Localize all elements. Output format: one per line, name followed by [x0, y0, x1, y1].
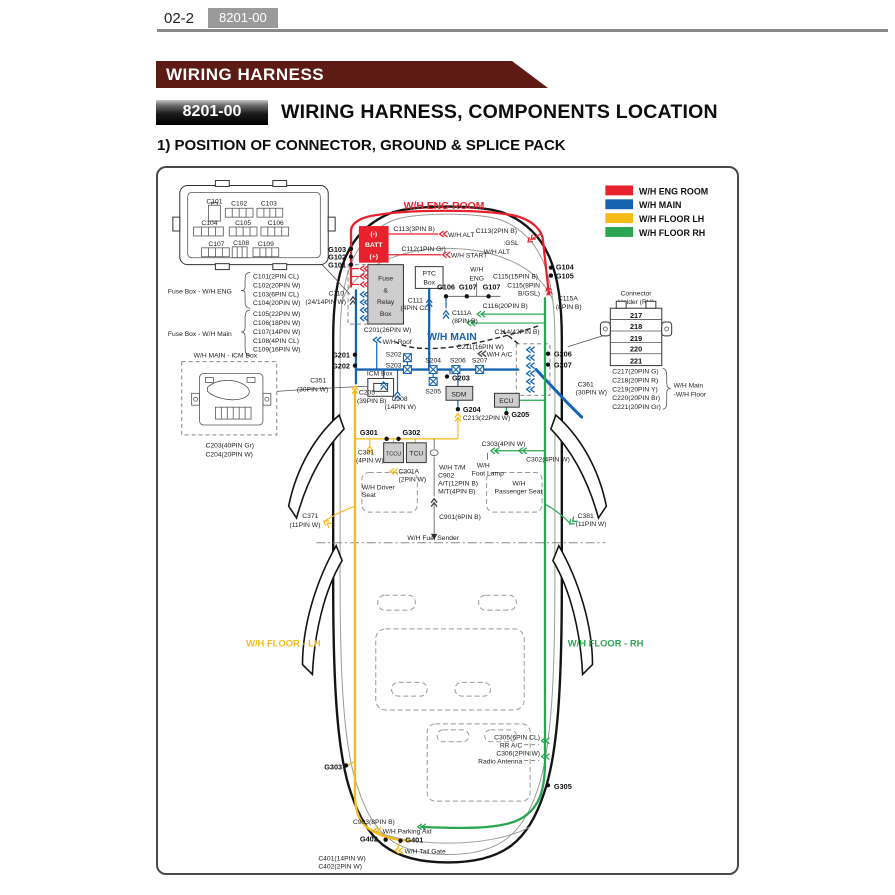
text-diagram-labels-s202: S202	[386, 352, 402, 359]
text-diagram-labels-g207: G207	[554, 361, 572, 370]
text-diagram-fusebox-conns-5: C106	[268, 220, 284, 227]
text-diagram-labels-c112: C112(1PIN Gr)	[401, 246, 445, 253]
text-diagram-labels-rrac: RR A/C	[500, 743, 523, 750]
chapter-banner: WIRING HARNESS	[156, 61, 548, 88]
ground-point-icon	[546, 362, 550, 366]
splice-pack-icon	[452, 366, 460, 374]
text-legend-items-1-label: W/H MAIN	[639, 200, 681, 210]
text-diagram-fusebox-conns-4: C105	[235, 220, 251, 227]
text-diagram-holder-items-3: C220(20PIN Br)	[612, 395, 660, 402]
connector-icon	[360, 315, 368, 321]
text-diagram-labels-c211: C211(16PIN W)	[457, 344, 504, 351]
text-diagram-labels-c305: C305(6PIN CL)	[494, 735, 540, 742]
connector-icon	[390, 469, 398, 475]
text-diagram-labels-g106: G106	[437, 282, 455, 291]
text-diagram-labels-c401: C401(14PIN W)	[318, 855, 365, 862]
section-heading: 8201-00 WIRING HARNESS, COMPONENTS LOCAT…	[156, 100, 718, 125]
text-diagram-labels-g402: G402	[360, 835, 378, 844]
text-diagram-labels-c115Ab: (8PIN B)	[556, 304, 582, 311]
ground-point-icon	[465, 294, 469, 298]
text-diagram-labels-c306: C306(2PIN W)	[496, 751, 540, 758]
text-diagram-icm-c204: C204(20PIN W)	[206, 452, 253, 459]
text-diagram-labels-c301Aa: C301A	[399, 468, 420, 475]
text-diagram-labels-g105: G105	[556, 272, 574, 281]
text-diagram-labels-c110b: (24/14PIN W)	[305, 299, 346, 306]
text-diagram-labels-c111b: (4PIN CL)	[400, 305, 430, 312]
text-diagram-labels-c361b: (30PIN W)	[576, 389, 607, 396]
text-diagram-labels-tailgate: W/H Tail Gate	[404, 849, 446, 856]
text-diagram-labels-c302: C302(4PIN W)	[526, 457, 570, 464]
text-diagram-labels-fr2: &	[383, 287, 388, 294]
text-diagram-labels-g206: G206	[554, 350, 572, 359]
connector-holder-callout: Connector Holder (RH) 217 218 219 220 22…	[600, 290, 706, 411]
text-diagram-labels-s207: S207	[472, 358, 488, 365]
text-diagram-labels-c381b: (11PIN W)	[576, 521, 607, 528]
text-diagram-labels-c351a: C351	[310, 377, 326, 384]
text-diagram-labels-whpass1: W/H	[512, 480, 525, 487]
text-diagram-labels-g202: G202	[332, 362, 350, 371]
section-badge: 8201-00	[156, 100, 268, 125]
text-legend-items-0-label: W/H ENG ROOM	[639, 186, 708, 196]
legend: W/H ENG ROOM W/H MAIN W/H FLOOR LH W/H F…	[605, 185, 708, 237]
text-diagram-labels-g301: G301	[360, 428, 378, 437]
text-diagram-labels-whroof: W/H Roof	[383, 339, 412, 346]
ground-point-icon	[546, 783, 550, 787]
text-diagram-labels-ecu: ECU	[499, 398, 513, 405]
text-legend-items-2-label: W/H FLOOR LH	[639, 214, 704, 224]
text-diagram-labels-c201: C201(26PIN W)	[364, 327, 411, 334]
text-diagram-labels-mt4: M/T(4PIN B)	[438, 488, 475, 495]
text-diagram-holder-rows-4: 221	[630, 357, 642, 366]
text-diagram-fusebox-conns-6: C107	[208, 241, 224, 248]
text-diagram-labels-c205a: C205	[359, 389, 375, 396]
text-diagram-labels-whac: W/H A/C	[487, 352, 513, 359]
splice-pack-icon	[429, 366, 437, 374]
connector-icon	[526, 234, 536, 244]
text-diagram-fusebox-conns-8: C109	[258, 241, 274, 248]
text-diagram-labels-c351b: (30PIN W)	[297, 386, 328, 393]
ground-point-icon	[396, 437, 400, 441]
text-diagram-regions-main: W/H MAIN	[427, 332, 477, 343]
text-diagram-labels-whtm: W/H T/M	[439, 465, 466, 472]
text-diagram-fusebox-main_items-0: C105(22PIN W)	[253, 311, 300, 318]
text-diagram-labels-c111Ab: (8PIN B)	[452, 318, 478, 325]
text-diagram-fusebox-eng_items-3: C104(20PIN W)	[253, 300, 300, 307]
text-diagram-labels-g305: G305	[554, 782, 572, 791]
splice-pack-icon	[429, 377, 437, 385]
text-legend-items-3-label: W/H FLOOR RH	[639, 228, 705, 238]
text-diagram-labels-g204: G204	[463, 405, 482, 414]
text-diagram-holder-note2: -W/H Floor	[674, 391, 707, 398]
text-diagram-labels-g201: G201	[332, 351, 350, 360]
text-diagram-holder-items-1: C218(20PIN R)	[612, 377, 658, 384]
diagram-svg: W/H ENG ROOM W/H MAIN W/H FLOOR LH W/H F…	[158, 168, 737, 873]
ground-point-icon	[549, 273, 553, 277]
ground-point-icon	[445, 374, 449, 378]
text-diagram-regions-lh: W/H FLOOR - LH	[246, 638, 321, 649]
text-diagram-labels-fuel: W/H Fuel Sender	[407, 535, 459, 542]
text-diagram-holder-note1: W/H Main	[674, 382, 704, 389]
ground-point-icon	[384, 437, 388, 441]
connector-icon	[527, 363, 535, 369]
chapter-title: WIRING HARNESS	[166, 65, 324, 84]
text-diagram-labels-c115_8a: C115(8PIN	[507, 282, 540, 289]
text-diagram-labels-sdm: SDM	[451, 391, 466, 398]
seat-area-labels: G301 G302 C301 (4PIN W) TCCU TCU C301A (…	[289, 428, 606, 542]
connector-icon	[527, 386, 535, 392]
text-diagram-holder-items-4: C221(20PIN Gr)	[612, 404, 661, 411]
text-diagram-labels-s206: S206	[450, 358, 466, 365]
ground-point-icon	[353, 353, 357, 357]
text-diagram-labels-bm: (-)	[370, 231, 377, 238]
ground-point-icon	[549, 265, 553, 269]
text-diagram-holder-t1: Connector	[621, 290, 653, 297]
text-diagram-labels-fr1: Fuse	[378, 275, 393, 282]
text-diagram-fusebox-main_items-4: C109(16PIN W)	[253, 347, 300, 354]
section-subtitle: 1) POSITION OF CONNECTOR, GROUND & SPLIC…	[157, 137, 566, 154]
text-diagram-fusebox-main_items-1: C106(18PIN W)	[253, 320, 300, 327]
text-diagram-labels-bp: (+)	[370, 254, 378, 261]
connector-icon	[360, 299, 368, 305]
splice-pack-icon	[403, 354, 411, 362]
text-diagram-labels-whstart: W/H START	[451, 253, 487, 260]
text-diagram-labels-whalt1: W/H ALT	[448, 232, 474, 239]
ground-point-icon	[349, 255, 353, 259]
text-diagram-icm-c203: C203(40PIN Gr)	[206, 443, 255, 450]
rear-right-door	[553, 546, 593, 675]
wh-floor-rh-harness	[421, 298, 569, 828]
text-diagram-labels-c208b: (14PIN W)	[385, 404, 416, 411]
ground-point-icon	[486, 294, 490, 298]
ground-point-icon	[383, 838, 387, 842]
text-diagram-fusebox-eng_items-0: C101(2PIN CL)	[253, 274, 299, 281]
connector-icon	[478, 351, 486, 357]
text-diagram-fusebox-conns-7: C108	[233, 240, 249, 247]
text-diagram-labels-g302: G302	[402, 428, 420, 437]
text-diagram-regions-eng: W/H ENG ROOM	[404, 201, 485, 212]
text-diagram-holder-rows-0: 217	[630, 311, 642, 320]
connector-icon	[360, 291, 368, 297]
connector-icon	[527, 378, 535, 384]
text-diagram-labels-s204: S204	[425, 358, 441, 365]
text-diagram-labels-c208a: C208	[392, 396, 408, 403]
text-diagram-labels-c115_15: C115(15PIN B)	[493, 274, 538, 281]
text-diagram-regions-rh: W/H FLOOR - RH	[568, 638, 644, 649]
components-location-diagram: W/H ENG ROOM W/H MAIN W/H FLOOR LH W/H F…	[156, 166, 739, 875]
fusebox-callout: C101 C102 C103 C104 C105 C106 C107 C108 …	[168, 181, 335, 356]
page-number: 02-2	[164, 10, 194, 27]
text-diagram-labels-c901: C901(6PIN B)	[439, 514, 481, 521]
text-diagram-labels-c301b: (4PIN W)	[356, 458, 384, 465]
connector-icon	[443, 311, 449, 319]
text-diagram-fusebox-conns-2: C103	[261, 200, 277, 207]
text-diagram-labels-tcu: TCU	[409, 451, 423, 458]
text-diagram-labels-g205: G205	[511, 410, 529, 419]
text-diagram-labels-c113b: C113(2PIN B)	[476, 228, 517, 235]
ground-point-icon	[398, 839, 402, 843]
text-diagram-labels-whalt2: W/H ALT	[484, 249, 510, 256]
text-diagram-labels-s203: S203	[386, 363, 402, 370]
text-diagram-labels-tccu: TCCU	[386, 452, 401, 458]
text-diagram-fusebox-conns-3: C104	[201, 220, 217, 227]
splice-pack-icon	[403, 366, 411, 374]
text-diagram-labels-g101: G101	[328, 261, 346, 270]
text-diagram-labels-g107b: G107	[483, 282, 501, 291]
text-diagram-fusebox-conns-1: C102	[231, 200, 247, 207]
section-code-badge: 8201-00	[208, 8, 278, 28]
text-diagram-labels-batt: BATT	[365, 242, 383, 249]
text-diagram-labels-c110a: C110	[328, 290, 344, 297]
text-diagram-holder-items-2: C219(20PIN Y)	[612, 386, 657, 393]
text-diagram-labels-c301Ab: (2PIN W)	[399, 476, 427, 483]
ground-point-icon	[456, 407, 460, 411]
text-diagram-labels-c371a: C371	[302, 513, 318, 520]
connector-icon	[360, 307, 368, 313]
text-diagram-labels-ptc2: Box	[423, 279, 435, 286]
text-diagram-labels-c115Aa: C115A	[558, 295, 579, 302]
text-diagram-labels-c303: C303(4PIN W)	[482, 441, 526, 448]
text-diagram-labels-whfoot1: W/H	[477, 463, 490, 470]
text-diagram-labels-gsl: :GSL	[503, 240, 519, 247]
text-diagram-labels-c111Aa: C111A	[452, 310, 472, 317]
text-diagram-labels-c113a: C113(3PIN B)	[394, 226, 435, 233]
text-diagram-labels-fr3: Relay	[377, 299, 395, 306]
text-diagram-labels-ptc1: PTC	[422, 271, 436, 278]
text-diagram-labels-c114: C114(42PIN B)	[495, 329, 540, 336]
icm-callout: W/H MAIN - ICM Box C203(40PIN Gr) C204(2…	[182, 353, 277, 459]
text-diagram-fusebox-eng_items-1: C102(20PIN W)	[253, 282, 300, 289]
section-title: WIRING HARNESS, COMPONENTS LOCATION	[281, 101, 718, 124]
ground-point-icon	[444, 294, 448, 298]
text-diagram-labels-radio: Radio Antenna	[478, 758, 522, 765]
splice-pack-icon	[476, 366, 484, 374]
text-diagram-fusebox-conns-0: C101	[206, 198, 222, 205]
text-diagram-labels-c205b: (39PIN B)	[357, 398, 387, 405]
text-diagram-labels-c371b: (11PIN W)	[289, 522, 320, 529]
ground-point-icon	[349, 262, 353, 266]
text-diagram-labels-g303: G303	[324, 762, 342, 771]
connector-icon	[527, 347, 535, 353]
text-diagram-labels-c111a: C111	[408, 297, 423, 304]
connector-icon	[527, 355, 535, 361]
text-diagram-holder-rows-2: 219	[630, 334, 642, 343]
text-diagram-labels-c213: C213(22PIN W)	[463, 415, 510, 422]
text-diagram-labels-whdrv2: Seat	[362, 492, 376, 499]
text-diagram-labels-g107a: G107	[459, 282, 477, 291]
text-diagram-labels-c116: C116(20PIN B)	[483, 303, 528, 310]
ground-point-icon	[353, 363, 357, 367]
legend-swatch-eng-room	[605, 185, 633, 195]
connector-icon	[360, 281, 368, 287]
text-diagram-labels-c402: C402(2PIN W)	[318, 863, 362, 870]
text-diagram-labels-fr4: Box	[380, 311, 392, 318]
connector-icon	[360, 266, 368, 272]
text-diagram-labels-whdrv1: W/H Driver	[362, 484, 396, 491]
text-diagram-labels-at12: A/T(12PIN B)	[438, 480, 478, 487]
connector-icon	[527, 371, 535, 377]
ground-point-icon	[546, 352, 550, 356]
text-diagram-labels-g203: G203	[452, 373, 470, 382]
legend-swatch-main	[605, 199, 633, 209]
text-diagram-labels-c903: C903(8PIN B)	[353, 819, 395, 826]
text-diagram-labels-whfoot2: Foot Lamp	[472, 470, 504, 477]
text-diagram-labels-c361a: C361	[578, 381, 594, 388]
text-diagram-labels-whpass2: Passenger Seat	[495, 488, 543, 495]
text-diagram-labels-c301a: C301	[358, 450, 374, 457]
text-diagram-holder-rows-3: 220	[630, 345, 642, 354]
header-rule	[157, 29, 888, 32]
text-diagram-fusebox-main_items-2: C107(14PIN W)	[253, 329, 300, 336]
text-diagram-labels-wheng1: W/H	[470, 267, 483, 274]
text-diagram-fusebox-eng_label: Fuse Box - W/H ENG	[168, 288, 232, 295]
legend-swatch-floor-lh	[605, 213, 633, 223]
front-right-door	[551, 415, 606, 518]
ground-point-icon	[344, 763, 348, 767]
rear-left-door	[303, 546, 343, 675]
text-diagram-labels-c381a: C381	[578, 513, 594, 520]
ground-point-icon	[349, 247, 353, 251]
text-diagram-fusebox-eng_items-2: C103(6PIN CL)	[253, 291, 299, 298]
text-diagram-labels-icmbox: ICM Box	[367, 371, 393, 378]
text-diagram-holder-items-0: C217(20PIN G)	[612, 369, 658, 376]
text-diagram-labels-g401: G401	[405, 836, 423, 845]
text-diagram-labels-s205: S205	[425, 388, 441, 395]
text-diagram-labels-g104: G104	[556, 263, 575, 272]
text-diagram-icm-title: W/H MAIN - ICM Box	[194, 353, 258, 360]
legend-swatch-floor-rh	[605, 227, 633, 237]
text-diagram-fusebox-main_items-3: C108(4PIN CL)	[253, 338, 299, 345]
front-left-door	[289, 415, 344, 518]
text-diagram-holder-rows-1: 218	[630, 322, 642, 331]
manual-page: 02-2 8201-00 WIRING HARNESS 8201-00 WIRI…	[0, 0, 895, 895]
text-diagram-labels-c115_8b: B/GSL)	[518, 290, 540, 297]
text-diagram-labels-c902: C902	[438, 472, 454, 479]
text-diagram-fusebox-main_label: Fuse Box - W/H Main	[168, 331, 232, 338]
connector-icon	[440, 231, 448, 237]
page-header: 02-2 8201-00	[164, 8, 278, 28]
